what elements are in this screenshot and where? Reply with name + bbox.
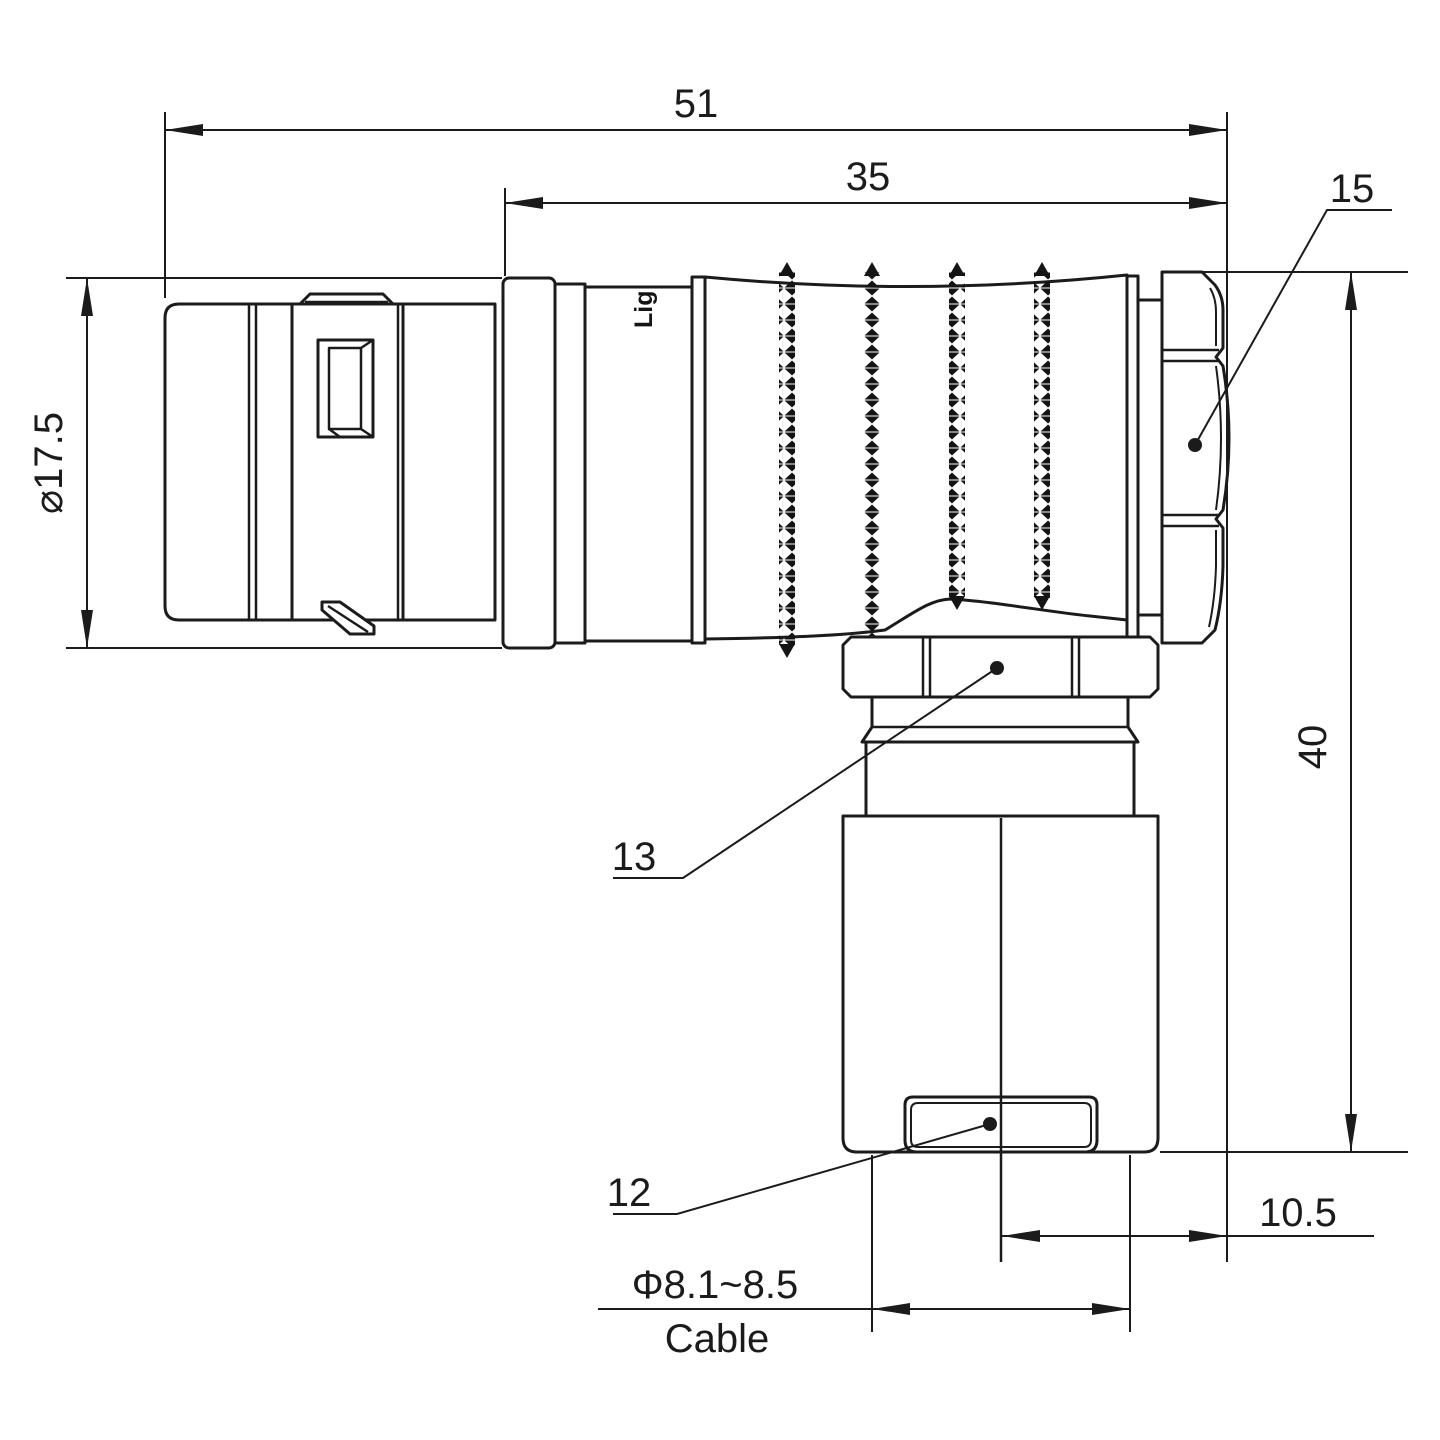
knurl-strip (779, 262, 795, 658)
connector-dimension-drawing: Lightany Lig (0, 0, 1440, 1440)
dim-cable-diameter-label: Φ8.1~8.5 (632, 1263, 798, 1307)
dim-front-length: 35 (505, 155, 1227, 209)
dim-cable-offset-label: 10.5 (1259, 1191, 1337, 1235)
latch-window (318, 340, 373, 437)
flange-step (555, 284, 585, 643)
body-end-cap (1127, 276, 1138, 637)
knurl-strip (1034, 262, 1050, 610)
clamp-neck (866, 742, 1134, 816)
flange-ring (503, 278, 555, 648)
item-backshell-nut-label: 15 (1330, 167, 1375, 211)
dim-height-label: 40 (1291, 725, 1335, 770)
knurl-strip (864, 262, 880, 652)
dim-height: 40 (1291, 272, 1357, 1152)
dim-cable-offset: 10.5 (1002, 1191, 1374, 1242)
dim-overall-length-label: 51 (674, 82, 719, 126)
nut-neck (1138, 300, 1162, 615)
separator-ring (692, 277, 705, 643)
connector-body: Lig (165, 262, 1229, 1262)
dim-overall-length: 51 (165, 82, 1227, 136)
dim-front-length-label: 35 (846, 155, 891, 199)
dim-shell-diameter: ⌀17.5 (27, 278, 93, 648)
front-shell (165, 304, 292, 620)
elbow-stack (843, 637, 1158, 1262)
mid-barrel (585, 287, 692, 641)
technical-drawing-page: Lightany Lig (0, 0, 1440, 1440)
knurl-strip (949, 262, 965, 610)
dim-cable-diameter: Φ8.1~8.5 Cable (598, 1263, 1130, 1361)
item-coupling-nut-label: 13 (612, 835, 657, 879)
item-cable-clamp-label: 12 (607, 1171, 652, 1215)
step-ring (862, 697, 1138, 742)
brand-mark-on-barrel: Lig (630, 291, 658, 329)
grip-body (705, 275, 1127, 639)
dim-shell-diameter-label: ⌀17.5 (27, 412, 71, 514)
backshell-nut (1162, 272, 1229, 643)
cable-label: Cable (665, 1317, 770, 1361)
